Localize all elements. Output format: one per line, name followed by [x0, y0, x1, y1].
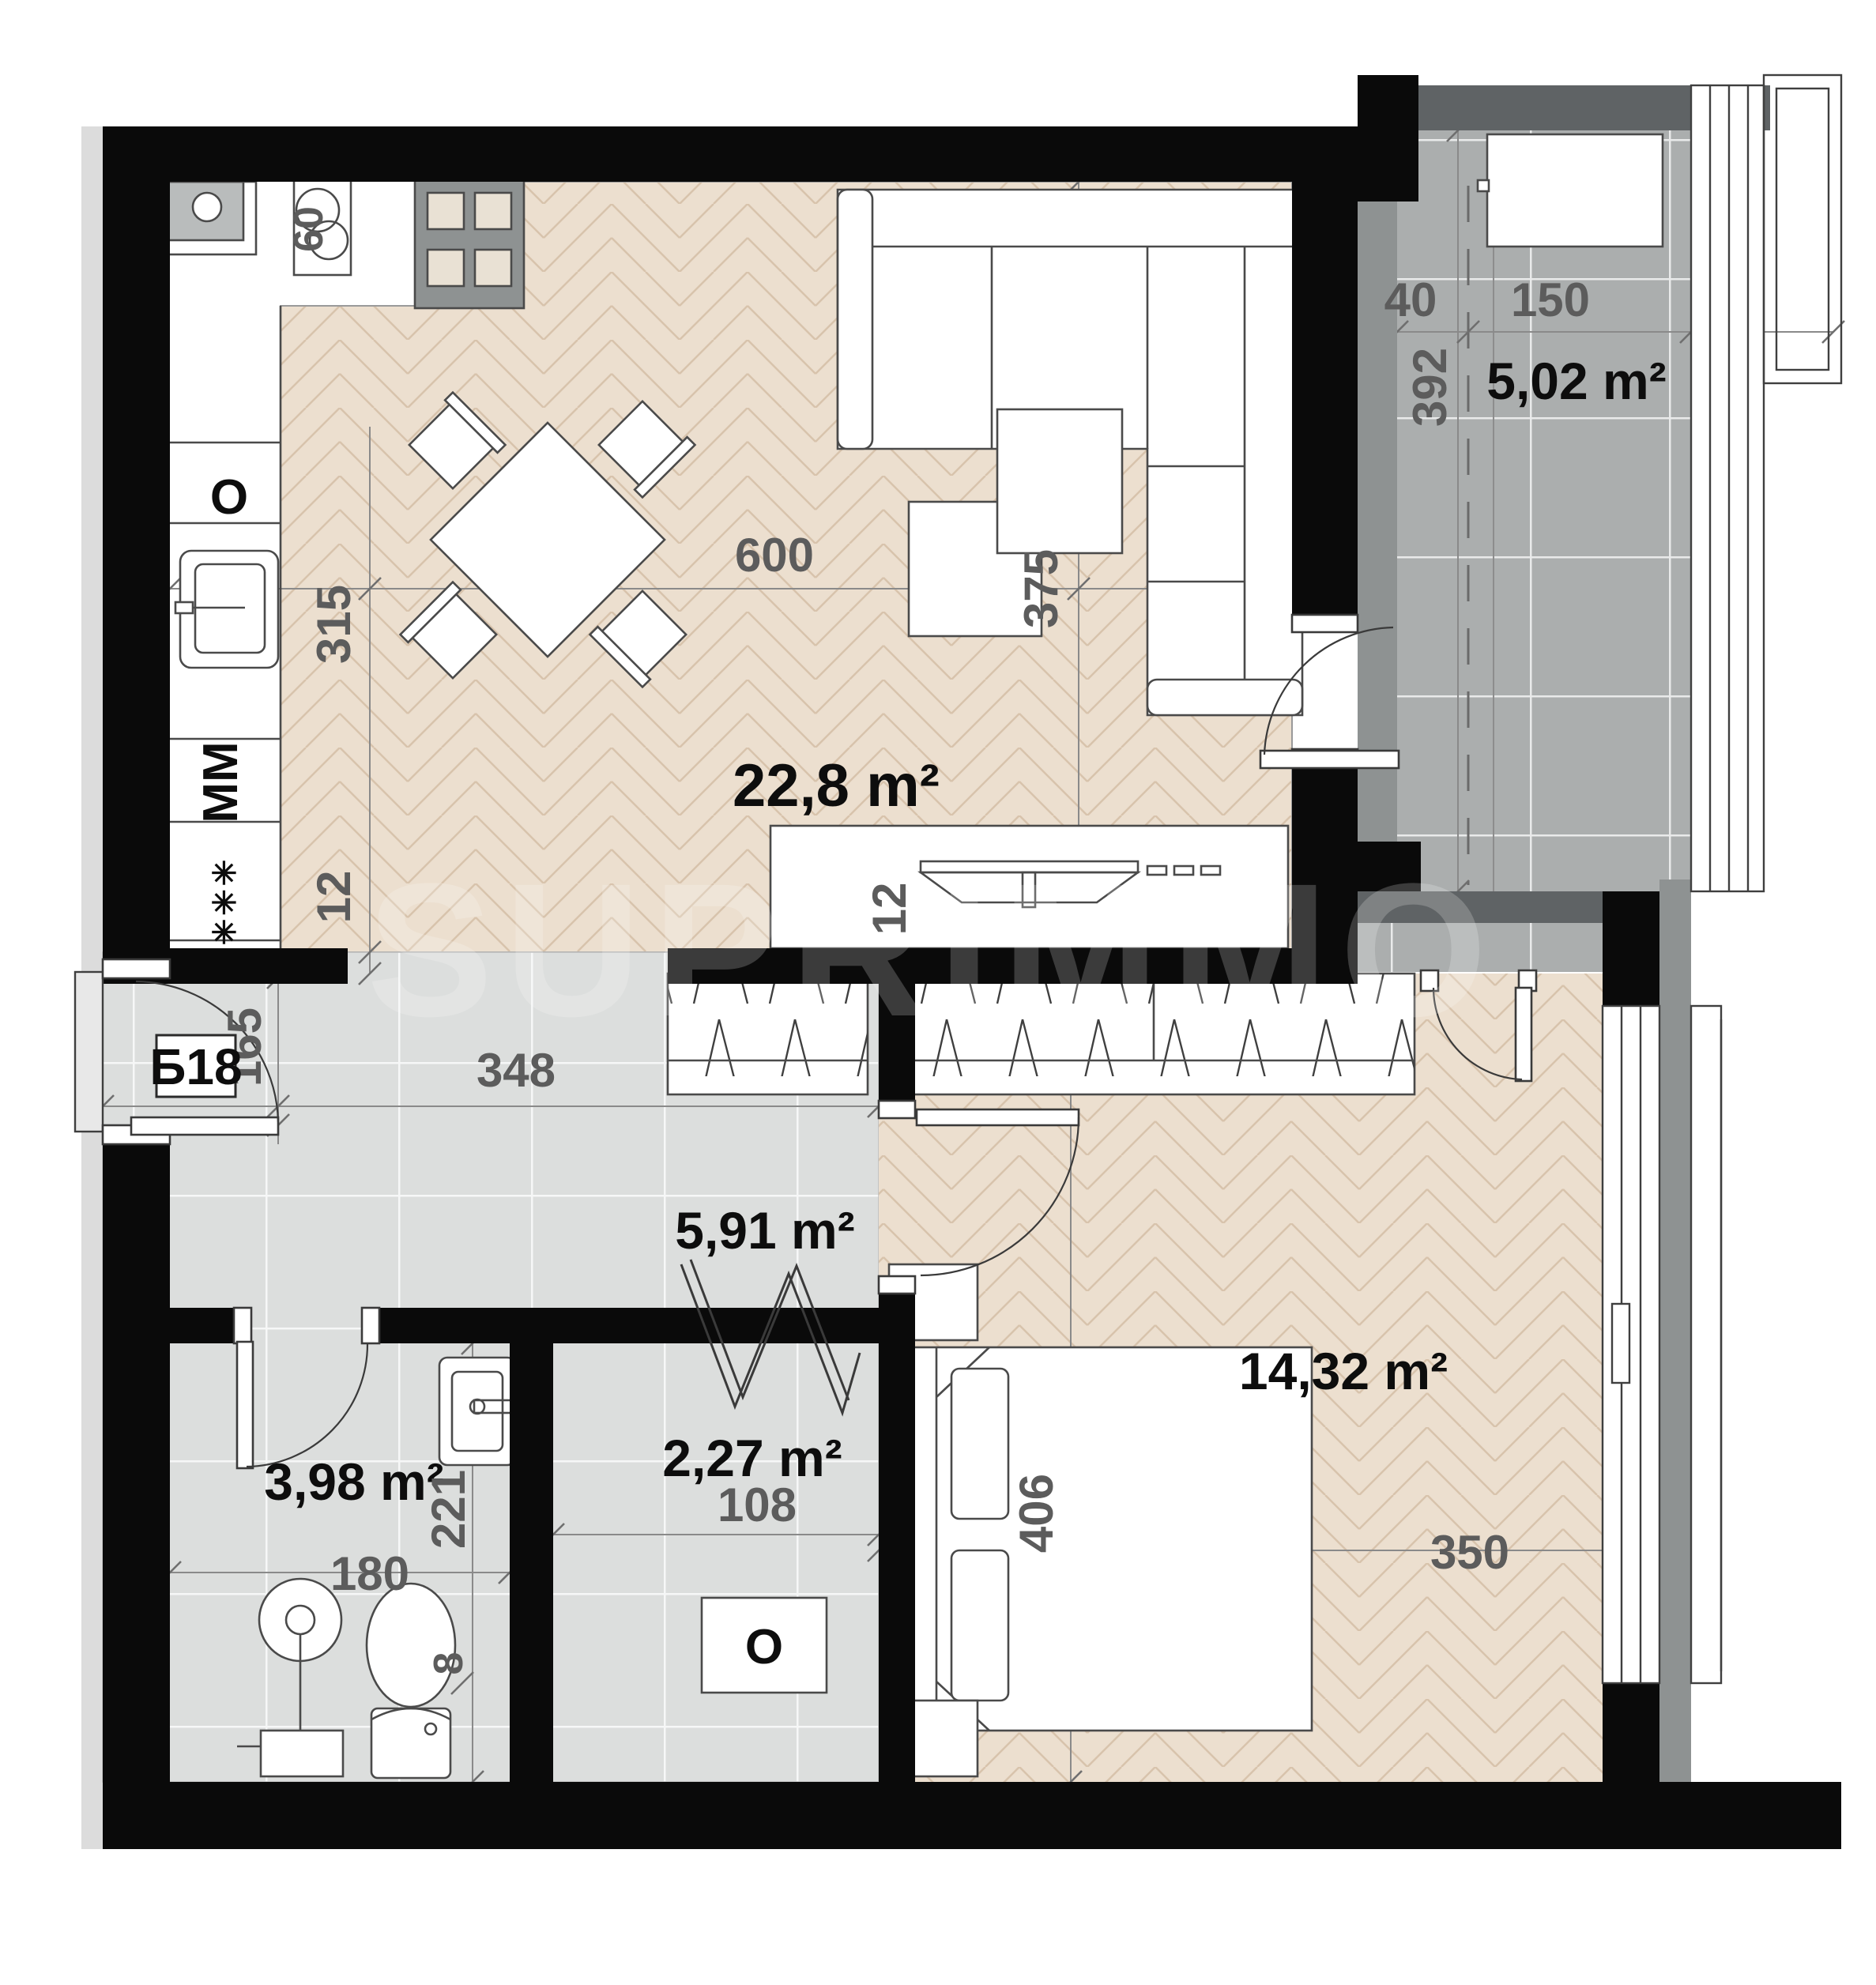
bed [901, 1347, 1312, 1731]
toilet [367, 1584, 455, 1778]
dim-180: 180 [330, 1547, 409, 1600]
entrance-threshold [75, 972, 103, 1132]
dim-108: 108 [718, 1478, 797, 1531]
dishwasher-symbol: MM [194, 741, 248, 823]
dim-60: 60 [286, 206, 332, 252]
unit-label: Б18 [149, 1038, 242, 1095]
wall-balcony [1292, 182, 1358, 632]
dim-315: 315 [307, 585, 360, 664]
floor-plan-drawing: SUPRIMMO 22,8 m² 5,02 m² 5,91 m² 14,32 m… [0, 0, 1876, 1985]
dim-375: 375 [1015, 549, 1068, 628]
dim-150: 150 [1511, 273, 1590, 326]
dim-348: 348 [477, 1044, 556, 1097]
wall-bath-closet [510, 1343, 553, 1782]
wall-left-upper [103, 126, 170, 977]
floor-plan-page: SUPRIMMO 22,8 m² 5,02 m² 5,91 m² 14,32 m… [0, 0, 1876, 1985]
bathroom-sink [439, 1358, 515, 1465]
dining-set [401, 393, 695, 687]
freezer-symbol: ✳✳✳ [208, 857, 243, 946]
wall-closet-b [857, 1308, 879, 1343]
wall-bedroom-b [879, 1276, 915, 1782]
boiler-symbol: O [745, 1620, 783, 1674]
dim-221: 221 [422, 1470, 475, 1549]
wall-balcony-top [1358, 75, 1418, 202]
dim-12-left: 12 [307, 871, 360, 924]
dim-12-tv: 12 [863, 883, 916, 936]
dim-392: 392 [1403, 348, 1456, 427]
area-label-hallway: 5,91 m² [675, 1201, 854, 1260]
wall-top [119, 126, 1358, 182]
cooktop [415, 180, 524, 308]
balcony-glazing [1691, 75, 1841, 891]
ac-unit [1478, 134, 1663, 247]
wall-right-gray [1659, 880, 1691, 1782]
wall-left-lower [103, 1125, 170, 1849]
area-label-bedroom: 14,32 m² [1239, 1342, 1448, 1400]
area-label-balcony: 5,02 m² [1486, 352, 1666, 410]
dim-406: 406 [1010, 1474, 1063, 1553]
wall-window-bottom [1603, 1683, 1659, 1782]
wall-closet-a [553, 1308, 680, 1343]
dim-40: 40 [1384, 273, 1437, 326]
kitchen-corner-unit [158, 182, 256, 254]
area-label-living: 22,8 m² [733, 752, 940, 819]
watermark-text: SUPRIMMO [367, 844, 1498, 1056]
kitchen-counter [170, 306, 281, 948]
area-label-bathroom: 3,98 m² [264, 1452, 443, 1511]
wall-bottom [103, 1782, 1841, 1849]
dim-350: 350 [1430, 1526, 1509, 1579]
dim-8: 8 [426, 1652, 472, 1675]
oven-symbol: O [210, 470, 248, 525]
wall-window-top [1603, 891, 1659, 1006]
dim-600: 600 [735, 529, 814, 582]
unit-label-box: Б18 [149, 1035, 242, 1097]
